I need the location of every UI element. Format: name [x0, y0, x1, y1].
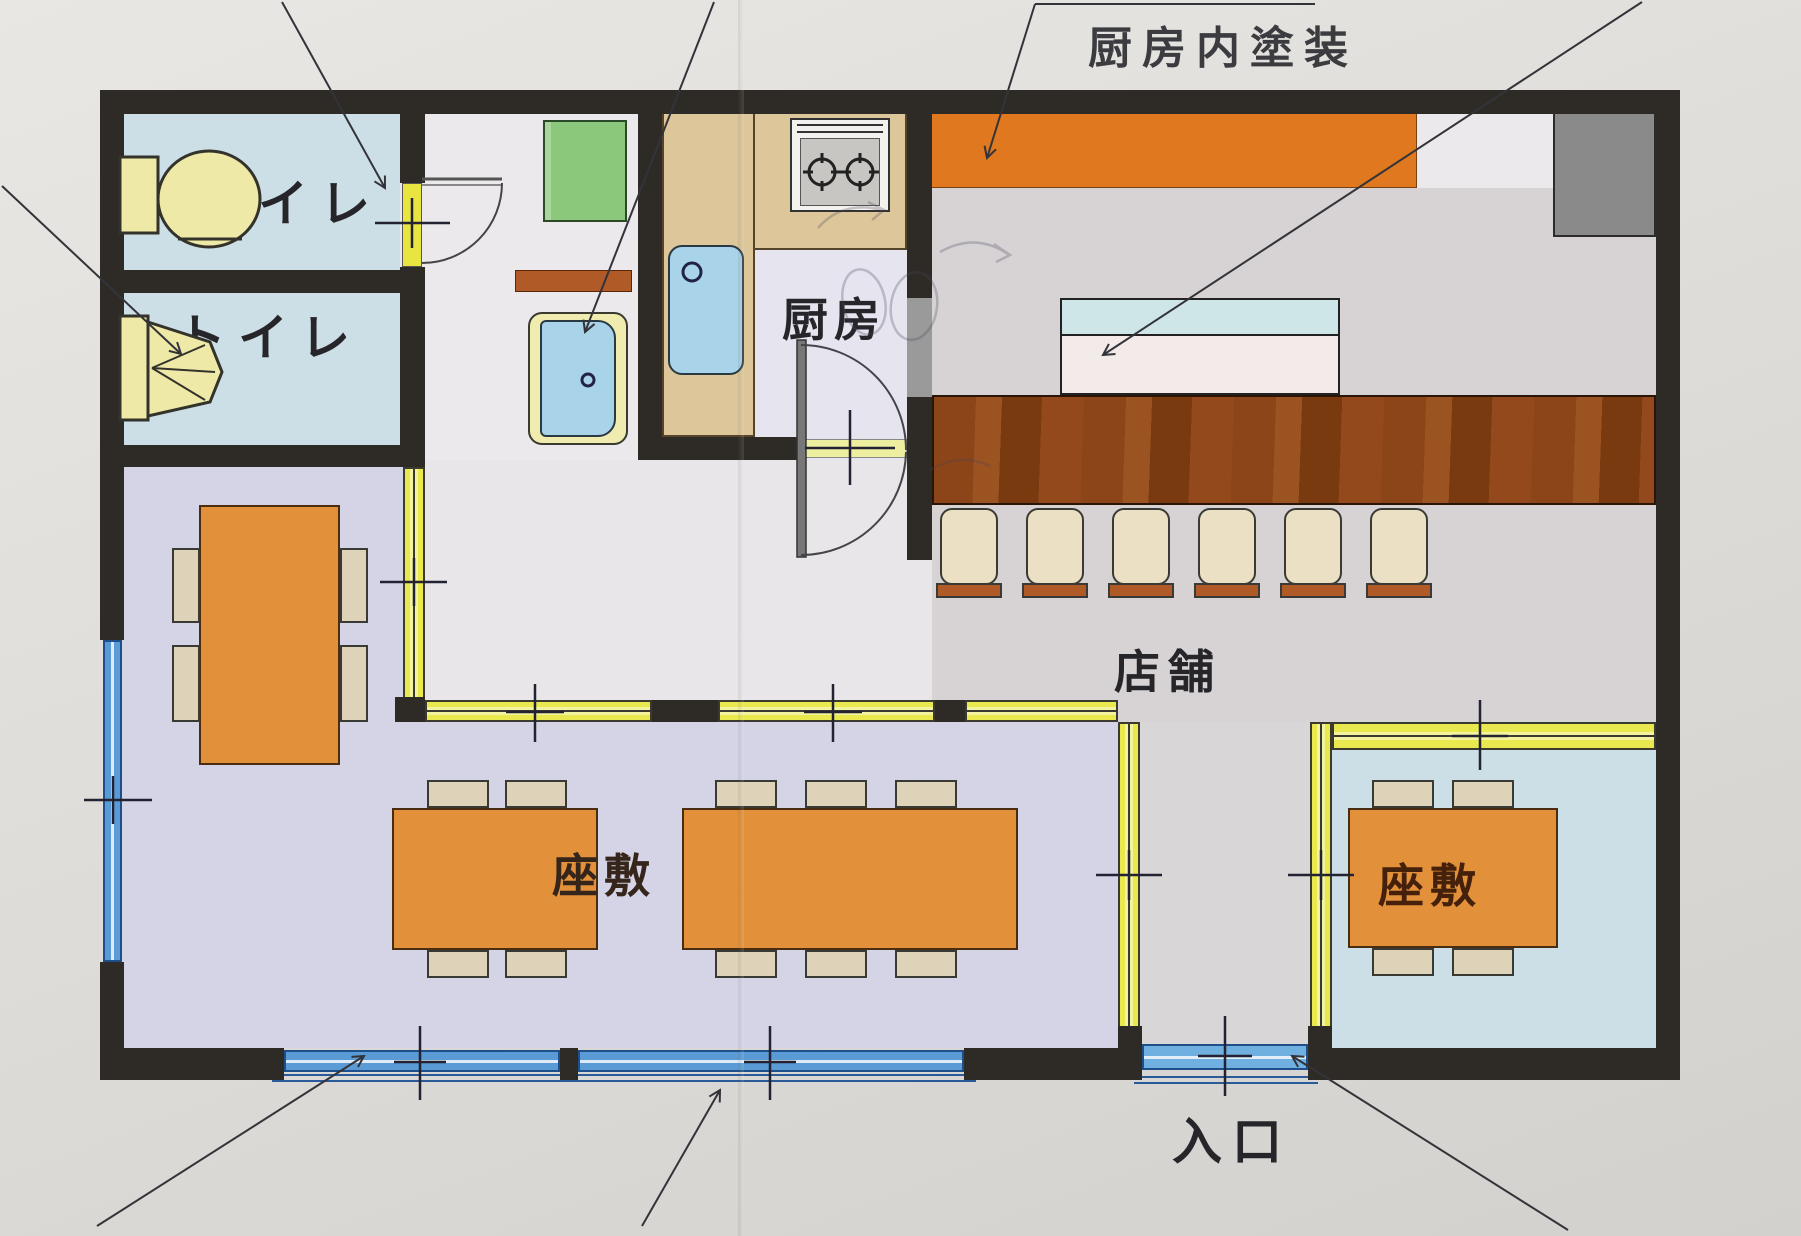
shelf-board	[515, 270, 632, 292]
toilet2-label: トイレ	[176, 298, 362, 370]
entrance-track-2	[1134, 1082, 1318, 1084]
stove-burner-plate	[800, 138, 880, 206]
chair	[895, 780, 957, 808]
counter-back-equipment-top	[1060, 298, 1340, 336]
kitchen-passthrough	[907, 298, 932, 397]
entrance-track-1	[1134, 1076, 1318, 1078]
window-track-2	[272, 1080, 976, 1082]
window-south-1	[284, 1050, 560, 1072]
toilet1-label: トイレ	[196, 164, 382, 236]
wall-toilet-east-lower	[400, 267, 425, 445]
wall-toilet-bottom	[100, 445, 425, 467]
kitchen-door-threshold	[800, 439, 907, 458]
partition-zashiki-main-1	[425, 700, 652, 722]
stool-base	[1022, 583, 1088, 598]
chair	[505, 780, 567, 808]
wall-toilet-divider	[100, 270, 425, 293]
wall-toilet-east-upper	[400, 112, 425, 183]
counter-stool	[1198, 508, 1256, 585]
kitchen-label: 厨房	[782, 284, 886, 350]
stove-control-line1	[797, 124, 883, 126]
wall-kitchen-east-lower	[907, 397, 932, 560]
chair	[427, 950, 489, 978]
chair	[715, 780, 777, 808]
partition-entrance-right	[1310, 722, 1332, 1048]
store-label: 店舗	[1114, 636, 1222, 702]
private-room-table	[199, 505, 340, 765]
post-entrance-right	[1308, 1026, 1332, 1048]
washbasin-bowl	[540, 320, 616, 437]
stool-base	[1280, 583, 1346, 598]
chair	[172, 548, 200, 623]
wall-kitchen-east-upper	[907, 112, 932, 298]
chair	[805, 950, 867, 978]
wall-right	[1656, 90, 1680, 1080]
entrance-sliding-door	[1142, 1044, 1308, 1070]
kitchen-paint-annotation: 厨房内塗装	[1088, 12, 1358, 76]
zashiki-main-label: 座敷	[552, 840, 656, 906]
chair	[427, 780, 489, 808]
post-partition-corner	[395, 697, 425, 722]
zashiki-right-label: 座敷	[1378, 850, 1482, 916]
wall-bottom-3	[964, 1048, 1142, 1080]
stove-control-line2	[797, 131, 883, 133]
wall-top	[100, 90, 1680, 114]
partition-private-room-east	[403, 467, 425, 700]
counter-stool	[1112, 508, 1170, 585]
counter-stool	[940, 508, 998, 585]
post-partition-east	[935, 700, 965, 722]
partition-zashiki-main-3	[965, 700, 1118, 722]
corridor-floor	[425, 460, 932, 722]
partition-zashiki-right-top	[1332, 722, 1656, 750]
counter-back-equipment-bottom	[1060, 334, 1340, 395]
wall-left-upper	[100, 90, 124, 640]
wall-bottom-2	[560, 1048, 578, 1080]
toilet1-door-panel	[402, 183, 422, 267]
green-cabinet	[543, 120, 627, 222]
kitchen-sink	[668, 245, 744, 375]
window-south-2	[578, 1050, 964, 1072]
chair	[715, 950, 777, 978]
chair	[340, 645, 368, 722]
bar-counter	[932, 395, 1656, 505]
chair	[1452, 948, 1514, 976]
wall-bottom-4	[1308, 1048, 1680, 1080]
counter-stool	[1370, 508, 1428, 585]
post-partition-mid	[652, 700, 718, 722]
wall-kitchen-west	[638, 112, 662, 460]
chair	[172, 645, 200, 722]
window-west	[103, 640, 122, 962]
stool-base	[1194, 583, 1260, 598]
entrance-corridor-floor	[1140, 722, 1310, 1048]
arrow-south-wall-right	[1292, 1056, 1568, 1230]
arrow-window-south2	[642, 1090, 720, 1226]
stool-base	[1366, 583, 1432, 598]
paper-fold-crease	[738, 0, 744, 1236]
zashiki-table-2	[682, 808, 1018, 950]
stool-base	[936, 583, 1002, 598]
chair	[1372, 780, 1434, 808]
entrance-label: 入口	[1172, 1102, 1292, 1174]
wall-kitchen-south	[662, 437, 800, 460]
wall-bottom-1	[100, 1048, 284, 1080]
kitchen-floor	[755, 250, 907, 460]
chair	[895, 950, 957, 978]
post-entrance-left	[1118, 1026, 1142, 1048]
stool-base	[1108, 583, 1174, 598]
partition-entrance-left	[1118, 722, 1140, 1048]
chair	[340, 548, 368, 623]
gray-equipment-box	[1553, 110, 1656, 237]
partition-zashiki-main-2	[718, 700, 935, 722]
counter-stool	[1026, 508, 1084, 585]
window-track-1	[272, 1074, 976, 1076]
chair	[1372, 948, 1434, 976]
counter-stool	[1284, 508, 1342, 585]
painted-strip	[928, 112, 1417, 188]
chair	[805, 780, 867, 808]
floorplan-photo: { "page": {"type": "restaurant-floor-pla…	[0, 0, 1801, 1236]
chair	[1452, 780, 1514, 808]
chair	[505, 950, 567, 978]
